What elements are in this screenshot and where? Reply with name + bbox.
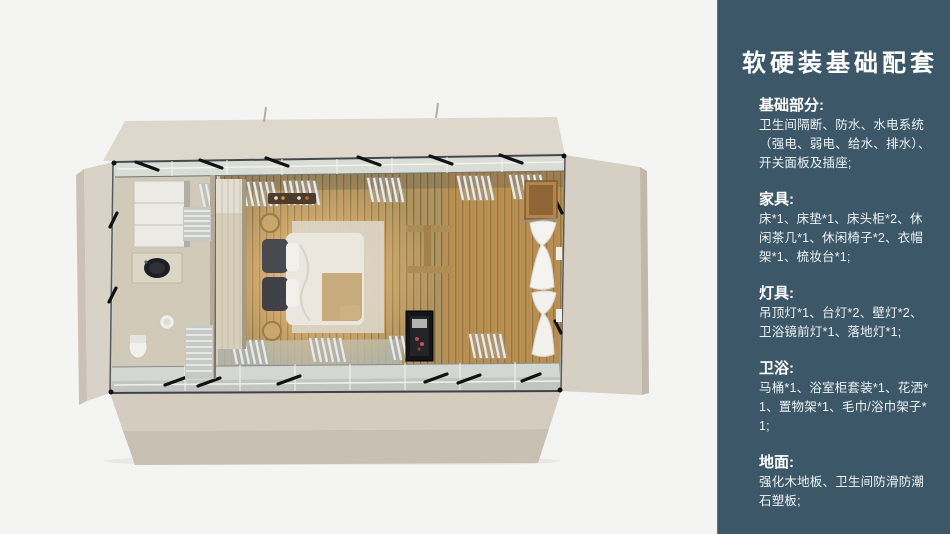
rattan-stool xyxy=(263,322,281,340)
section-heading: 地面: xyxy=(759,453,935,472)
slatted-panel xyxy=(185,325,213,379)
floor-plan-svg xyxy=(70,95,690,465)
spec-sections: 基础部分: 卫生间隔断、防水、水电系统（强电、弱电、给水、排水）、开关面板及插座… xyxy=(759,96,935,511)
section-lighting: 灯具: 吊顶灯*1、台灯*2、壁灯*2、卫浴镜前灯*1、落地灯*1; xyxy=(759,284,935,342)
section-body: 吊顶灯*1、台灯*2、壁灯*2、卫浴镜前灯*1、落地灯*1; xyxy=(759,304,931,342)
section-body: 强化木地板、卫生间防滑防潮石塑板; xyxy=(759,473,931,511)
section-heading: 基础部分: xyxy=(759,96,935,115)
section-body: 卫生间隔断、防水、水电系统（强电、弱电、给水、排水）、开关面板及插座; xyxy=(759,116,931,173)
section-bath: 卫浴: 马桶*1、浴室柜套装*1、花洒*1、置物架*1、毛巾/浴巾架子*1; xyxy=(759,359,935,436)
bathroom-cabinet xyxy=(134,181,190,247)
section-basics: 基础部分: 卫生间隔断、防水、水电系统（强电、弱电、给水、排水）、开关面板及插座… xyxy=(759,96,935,173)
pillow xyxy=(262,277,288,311)
wardrobe xyxy=(216,179,246,349)
section-body: 马桶*1、浴室柜套装*1、花洒*1、置物架*1、毛巾/浴巾架子*1; xyxy=(759,379,931,436)
pillow xyxy=(262,239,288,273)
section-heading: 灯具: xyxy=(759,284,935,303)
wall-lamp xyxy=(556,309,562,322)
slatted-panel xyxy=(183,207,211,241)
section-furniture: 家具: 床*1、床垫*1、床头柜*2、休闲茶几*1、休闲椅子*2、衣帽架*1、梳… xyxy=(759,190,935,267)
section-heading: 家具: xyxy=(759,190,935,209)
slide: 软硬装基础配套 基础部分: 卫生间隔断、防水、水电系统（强电、弱电、给水、排水）… xyxy=(0,0,950,534)
section-body: 床*1、床垫*1、床头柜*2、休闲茶几*1、休闲椅子*2、衣帽架*1、梳妆台*1… xyxy=(759,210,931,267)
panel-title: 软硬装基础配套 xyxy=(742,50,938,79)
floor-plan-render xyxy=(70,95,690,465)
display-cabinet xyxy=(406,311,433,361)
cushion xyxy=(340,305,360,320)
section-floor: 地面: 强化木地板、卫生间防滑防潮石塑板; xyxy=(759,453,935,511)
section-heading: 卫浴: xyxy=(759,359,935,378)
info-panel: 软硬装基础配套 基础部分: 卫生间隔断、防水、水电系统（强电、弱电、给水、排水）… xyxy=(717,0,950,534)
wall-lamp xyxy=(556,247,562,260)
rattan-stool xyxy=(261,214,279,232)
